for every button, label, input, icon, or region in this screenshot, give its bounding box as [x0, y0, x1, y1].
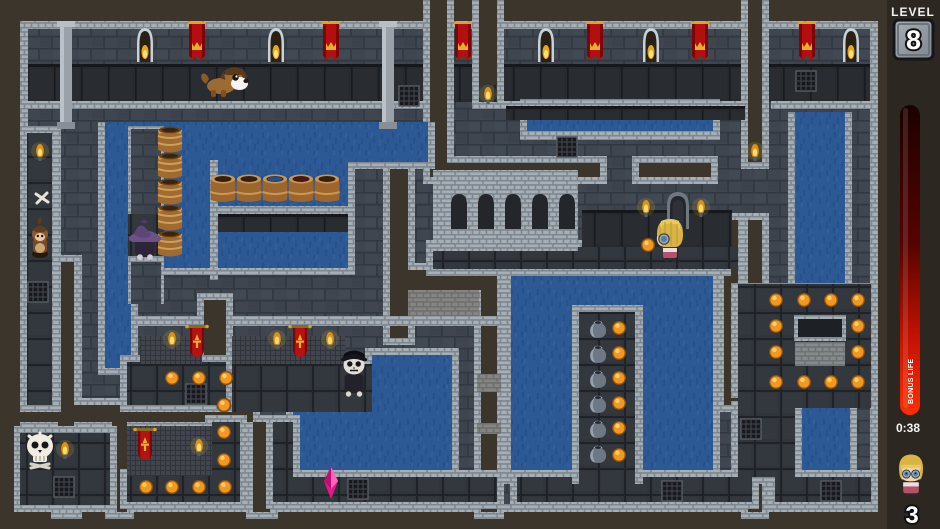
svg-text:3: 3 — [905, 502, 918, 529]
svg-text:LEVEL: LEVEL — [891, 5, 935, 19]
svg-text:0:38: 0:38 — [896, 421, 920, 435]
svg-text:BONUS LIFE: BONUS LIFE — [908, 359, 915, 404]
svg-text:8: 8 — [906, 25, 921, 55]
